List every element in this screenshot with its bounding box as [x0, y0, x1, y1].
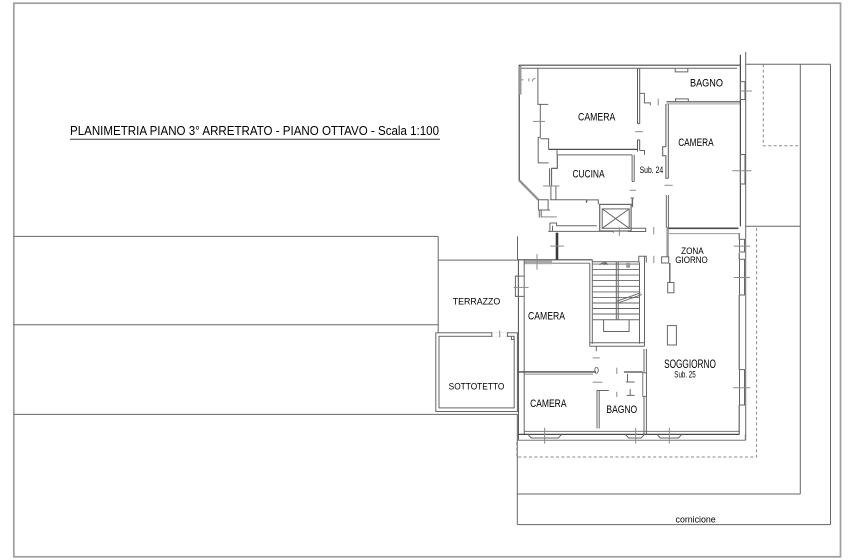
- svg-text:CAMERA: CAMERA: [528, 310, 565, 322]
- svg-text:BAGNO: BAGNO: [690, 77, 723, 89]
- svg-text:cornicione: cornicione: [676, 514, 716, 524]
- svg-text:CAMERA: CAMERA: [678, 137, 714, 149]
- svg-text:PLANIMETRIA PIANO 3° ARRETRATO: PLANIMETRIA PIANO 3° ARRETRATO - PIANO O…: [70, 123, 439, 138]
- svg-text:CUCINA: CUCINA: [572, 168, 605, 180]
- svg-text:TERRAZZO: TERRAZZO: [453, 296, 501, 306]
- svg-text:Sub. 25: Sub. 25: [674, 369, 695, 379]
- svg-text:Sub. 24: Sub. 24: [640, 165, 664, 175]
- svg-text:CAMERA: CAMERA: [578, 111, 616, 123]
- svg-text:BAGNO: BAGNO: [606, 404, 637, 416]
- svg-text:CAMERA: CAMERA: [530, 398, 567, 410]
- svg-text:GIORNO: GIORNO: [675, 255, 708, 266]
- svg-text:SOTTOTETTO: SOTTOTETTO: [449, 381, 505, 391]
